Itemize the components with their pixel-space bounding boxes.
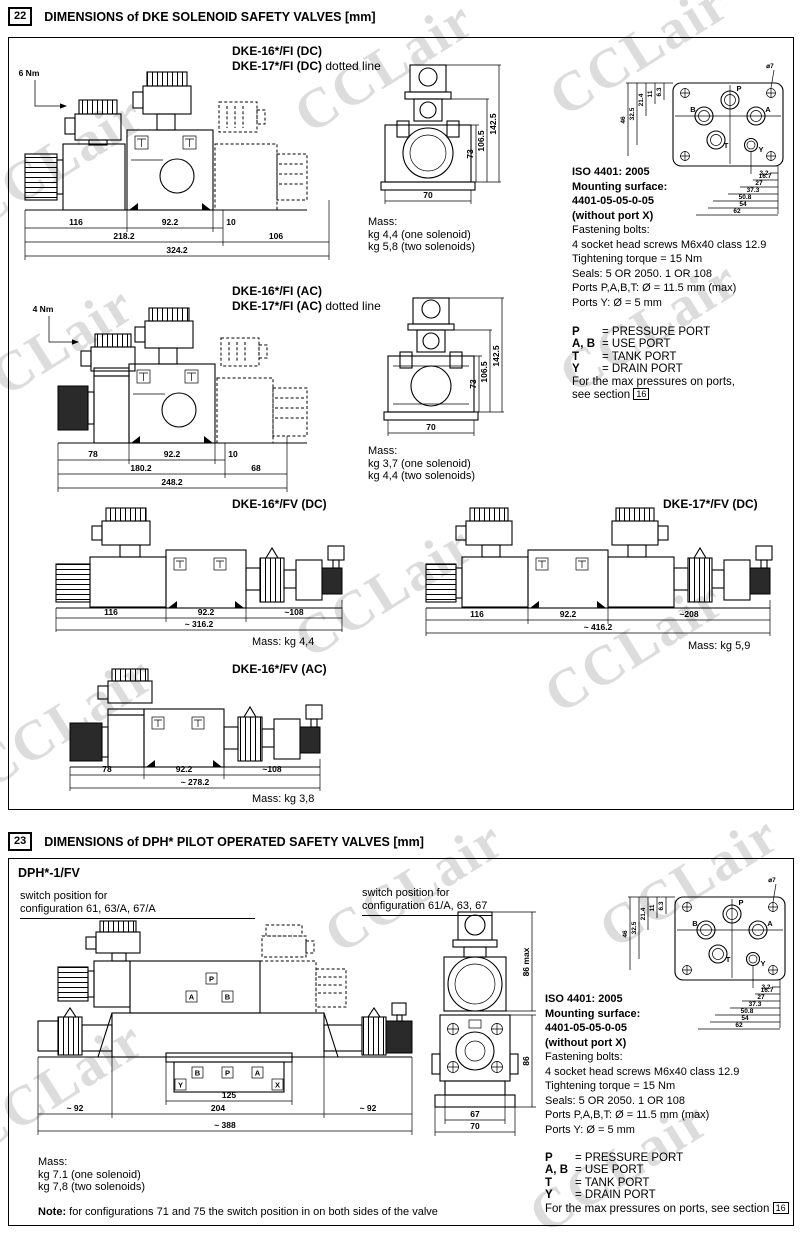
svg-text:92.2: 92.2 [560,609,577,619]
max-pressure-note: For the max pressures on ports, see sect… [545,1202,789,1215]
dimension-lines: 116 92.2 ~108 ~ 316.2 [56,600,342,632]
port-legend: P= PRESSURE PORT A, B= USE PORT T= TANK … [545,1152,789,1215]
dimension-lines: 78 92.2 ~108 ~ 278.2 [70,759,320,791]
din-connector [86,921,140,961]
bolt-diameter-label: ⌀7 [766,63,774,88]
svg-text:116: 116 [104,607,118,617]
dke-fi-ac-side-view: 4 Nm 78 92.2 10 [15,298,363,494]
legend-row: P= PRESSURE PORT [572,326,735,338]
second-solenoid [608,557,674,607]
base-plate [381,182,475,190]
second-solenoid-dotted [260,925,346,1013]
dimension-lines: 70 73 106.5 142.5 [388,298,504,436]
svg-text:~ 316.2: ~ 316.2 [185,619,214,629]
section-23-title: DIMENSIONS of DPH* PILOT OPERATED SAFETY… [44,835,424,849]
svg-text:P: P [209,975,214,984]
svg-text:P: P [738,898,743,907]
svg-text:92.2: 92.2 [162,217,179,227]
legend-row: Y= DRAIN PORT [572,363,735,375]
svg-text:B: B [195,1069,201,1078]
legend-row: T= TANK PORT [545,1177,789,1189]
manifold-block: B P A Y X [166,1053,292,1092]
svg-text:73: 73 [465,149,475,159]
manual-override-knob [70,723,108,761]
svg-text:92.2: 92.2 [198,607,215,617]
svg-text:21.4: 21.4 [640,907,647,920]
legend-row: A, B= USE PORT [572,338,735,350]
dph-side-view: P A B B P A Y [16,915,428,1143]
solenoid-tube [417,330,445,352]
svg-text:324.2: 324.2 [166,245,188,255]
port-p: P [723,898,744,923]
dke-fi-dc-side-view: 6 Nm 116 92.2 [15,60,363,268]
svg-text:Y: Y [760,959,765,968]
main-valve-body [38,1013,412,1057]
torque-label: 6 Nm [19,68,67,109]
configuration-note: Note: for configurations 71 and 75 the s… [38,1206,438,1218]
svg-text:78: 78 [88,449,98,459]
max-pressure-note: For the max pressures on ports, [572,376,735,388]
svg-text:6.3: 6.3 [658,901,665,910]
svg-text:116: 116 [470,609,484,619]
din-connector [92,508,150,557]
dimension-lines: 116 92.2 10 218.2 106 324.2 [25,200,329,260]
svg-text:~ 278.2: ~ 278.2 [181,777,210,787]
section-22-number: 22 [8,7,32,26]
svg-text:~ 416.2: ~ 416.2 [584,622,613,632]
torque-label: 4 Nm [33,304,79,345]
svg-text:~108: ~108 [284,607,303,617]
mass-fv-dc17: Mass: kg 5,9 [688,640,750,653]
legend-row: T= TANK PORT [572,351,735,363]
main-body-front [432,1015,518,1081]
svg-text:A: A [189,993,195,1002]
solenoid-body [462,557,528,607]
max-pressure-note: see section 16 [572,388,735,401]
manual-override-knob [426,564,462,602]
manual-override-knob [58,386,94,430]
svg-text:32.5: 32.5 [631,921,638,934]
svg-text:86: 86 [521,1056,531,1066]
valve-block [528,550,608,608]
section-22-header: 22 DIMENSIONS of DKE SOLENOID SAFETY VAL… [8,7,376,26]
din-connector [98,669,152,703]
dimension-lines: 78 92.2 10 180.2 68 248.2 [58,436,287,492]
din-connector [135,308,193,364]
svg-text:78: 78 [102,764,112,774]
svg-text:70: 70 [470,1121,480,1131]
svg-text:21.4: 21.4 [638,93,645,106]
din-connector [612,508,668,557]
dph-model-title: DPH*-1/FV [18,866,80,881]
valve-block [166,550,246,608]
manual-override-knob [58,967,94,1001]
svg-text:T: T [724,141,729,150]
dke-fv-dc17-side-view: 116 92.2 ~208 ~ 416.2 [412,502,792,638]
svg-text:6.3: 6.3 [656,87,663,96]
pilot-valve-block: P A B [130,961,260,1013]
mass-fi-dc: Mass: kg 4,4 (one solenoid) kg 5,8 (two … [368,216,475,254]
port-legend: P= PRESSURE PORT A, B= USE PORT T= TANK … [572,326,735,401]
dke-fi-dc-title-line1: DKE-16*/FI (DC) [232,44,381,59]
svg-text:11: 11 [647,90,654,97]
port-a: A [749,919,773,939]
dph-front-view: 86 max 86 67 70 [428,908,550,1134]
svg-text:P: P [225,1069,230,1078]
right-switch-assembly [324,1003,412,1055]
port-t: T [707,131,729,150]
din-connector [405,65,451,99]
second-solenoid-dotted [215,102,307,210]
port-p: P [721,84,742,109]
pressure-switch [246,546,344,602]
section-22-title: DIMENSIONS of DKE SOLENOID SAFETY VALVES… [44,10,375,24]
svg-text:67: 67 [470,1109,480,1119]
manual-override-knob [56,564,90,602]
mounting-face [673,83,783,166]
mounting-tab [450,352,462,368]
dimension-lines: 70 73 106.5 142.5 [385,65,501,204]
svg-text:54: 54 [741,1015,749,1022]
pressure-switch [674,546,772,602]
dke-fv-ac16-side-view: 78 92.2 ~108 ~ 278.2 [28,665,393,793]
valve-block [129,364,215,443]
svg-text:A: A [255,1069,261,1078]
mounting-tab [400,352,412,368]
solenoid-body [108,709,144,767]
legend-row: P= PRESSURE PORT [545,1152,789,1164]
section-16-ref: 16 [773,1202,789,1214]
legend-row: Y= DRAIN PORT [545,1189,789,1201]
subplate [435,1095,515,1107]
left-dimension-stack: 46 32.5 21.4 11 6.3 [620,83,673,156]
svg-text:~ 92: ~ 92 [67,1103,84,1113]
svg-text:86 max: 86 max [521,947,531,976]
din-connector [65,100,121,145]
mounting-tab [447,121,459,137]
dke-fi-dc-front-view: 70 73 106.5 142.5 [372,62,504,210]
svg-text:~108: ~108 [262,764,281,774]
dke-fv-dc16-side-view: 116 92.2 ~108 ~ 316.2 [28,502,393,634]
coil-front [388,356,474,412]
svg-text:106.5: 106.5 [479,361,489,383]
svg-text:73: 73 [468,379,478,389]
solenoid-body [63,144,125,210]
svg-text:50.8: 50.8 [741,1008,754,1015]
legend-row: A, B= USE PORT [545,1164,789,1176]
svg-text:27: 27 [757,994,765,1001]
solenoid-neck [464,947,486,957]
svg-text:106.5: 106.5 [476,130,486,152]
bolt-diameter-label: ⌀7 [768,877,776,902]
svg-text:70: 70 [423,190,433,200]
svg-text:11: 11 [649,904,656,911]
svg-text:10: 10 [226,217,236,227]
svg-text:70: 70 [426,422,436,432]
coil-front [385,125,471,182]
svg-text:46: 46 [620,116,627,124]
mass-fi-ac: Mass: kg 3,7 (one solenoid) kg 4,4 (two … [368,445,475,483]
svg-text:~ 92: ~ 92 [360,1103,377,1113]
svg-text:B: B [690,105,696,114]
svg-text:37.3: 37.3 [749,1001,762,1008]
second-solenoid-dotted [217,338,307,443]
svg-text:A: A [765,105,771,114]
base-plate [445,1081,505,1095]
dke-fi-ac-front-view: 70 73 106.5 142.5 [375,296,507,440]
svg-text:92.2: 92.2 [164,449,181,459]
svg-text:⌀7: ⌀7 [768,877,776,884]
valve-block [127,130,213,210]
svg-text:92.2: 92.2 [176,764,193,774]
port-a: A [747,105,771,125]
svg-text:⌀7: ⌀7 [766,63,774,70]
svg-text:218.2: 218.2 [113,231,135,241]
port-t: T [709,945,731,964]
svg-text:46: 46 [622,930,629,938]
solenoid-tube [414,99,442,121]
left-dimension-stack: 46 32.5 21.4 11 6.3 [622,897,675,970]
svg-text:~ 388: ~ 388 [214,1120,236,1130]
svg-text:68: 68 [251,463,261,473]
svg-text:142.5: 142.5 [491,345,501,367]
iso-spec-text: ISO 4401: 2005 Mounting surface: 4401-05… [545,992,739,1137]
svg-text:Y: Y [178,1081,183,1090]
svg-text:~208: ~208 [679,609,698,619]
svg-text:16.7: 16.7 [761,987,774,994]
datasheet-page: CCLair CCLair CCLair CCLair CCLair CCLai… [0,0,800,1233]
svg-text:125: 125 [222,1090,236,1100]
mass-dph: Mass: kg 7.1 (one solenoid) kg 7,8 (two … [38,1156,145,1194]
din-connector [456,508,512,557]
pressure-switch [224,705,322,761]
svg-text:142.5: 142.5 [488,113,498,135]
svg-text:P: P [736,84,741,93]
port-b: B [692,919,715,939]
port-b: B [690,105,713,125]
svg-text:6 Nm: 6 Nm [19,68,40,78]
mounting-face [675,897,785,980]
port-y: Y [747,953,766,969]
svg-text:10: 10 [228,449,238,459]
din-connector [408,298,454,330]
svg-text:B: B [225,993,231,1002]
section-16-ref: 16 [633,388,649,400]
section-23-header: 23 DIMENSIONS of DPH* PILOT OPERATED SAF… [8,832,424,851]
svg-text:180.2: 180.2 [130,463,152,473]
din-connector [453,912,497,947]
svg-text:32.5: 32.5 [629,107,636,120]
manual-override-knob [25,154,63,200]
din-connector [81,334,135,371]
port-y: Y [745,139,764,155]
svg-text:106: 106 [269,231,283,241]
solenoid-body [90,557,166,607]
din-connector [133,72,191,130]
svg-text:204: 204 [211,1103,225,1113]
svg-text:X: X [275,1081,280,1090]
solenoid-body [94,368,129,443]
valve-block [144,709,224,767]
svg-text:Y: Y [758,145,763,154]
svg-text:T: T [726,955,731,964]
svg-text:248.2: 248.2 [161,477,183,487]
svg-text:B: B [692,919,698,928]
iso-spec-text: ISO 4401: 2005 Mounting surface: 4401-05… [572,165,766,310]
mass-fv-ac16: Mass: kg 3,8 [252,793,314,806]
svg-text:4 Nm: 4 Nm [33,304,54,314]
pilot-coil-front [444,957,506,1011]
mounting-tab [397,121,409,137]
svg-text:116: 116 [69,217,83,227]
base-plate [384,412,478,420]
mass-fv-dc16: Mass: kg 4,4 [252,636,314,649]
section-23-number: 23 [8,832,32,851]
pilot-solenoid [94,961,130,1007]
svg-text:A: A [767,919,773,928]
